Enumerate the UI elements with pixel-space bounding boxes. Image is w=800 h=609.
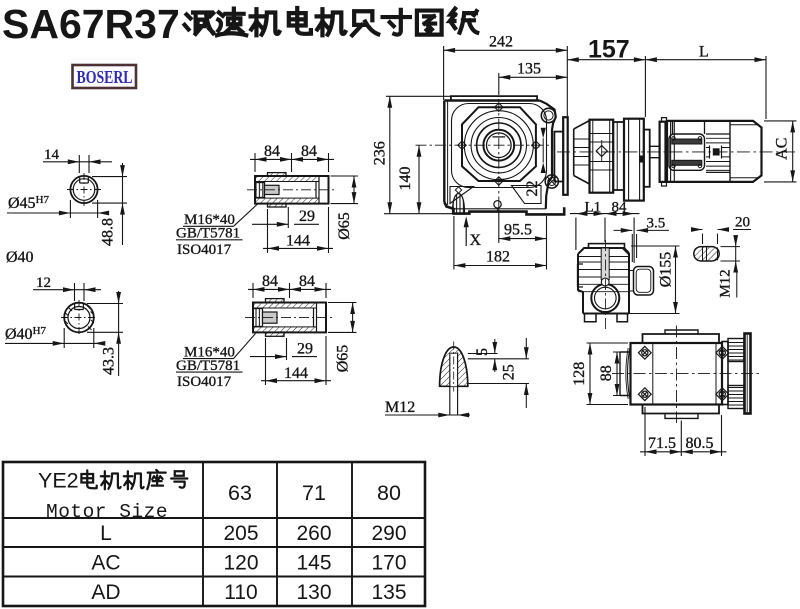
svg-text:110: 110 <box>224 581 257 604</box>
svg-text:22: 22 <box>524 181 541 197</box>
svg-text:84: 84 <box>299 273 315 290</box>
svg-text:80: 80 <box>377 481 401 505</box>
svg-text:170: 170 <box>371 552 406 575</box>
svg-text:20: 20 <box>735 215 750 231</box>
svg-text:260: 260 <box>296 522 331 545</box>
svg-text:L1: L1 <box>585 200 602 216</box>
svg-text:5: 5 <box>474 348 491 356</box>
svg-text:3.5: 3.5 <box>647 216 666 232</box>
svg-text:84: 84 <box>262 273 278 290</box>
svg-text:M12: M12 <box>385 399 415 416</box>
svg-text:25: 25 <box>501 364 518 380</box>
svg-text:144: 144 <box>284 365 308 382</box>
svg-text:14: 14 <box>44 147 60 163</box>
svg-text:140: 140 <box>397 167 414 191</box>
svg-text:Ø155: Ø155 <box>658 252 675 288</box>
svg-text:157: 157 <box>588 36 630 64</box>
svg-text:95.5: 95.5 <box>504 222 532 239</box>
svg-text:290: 290 <box>371 522 406 545</box>
svg-text:135: 135 <box>517 61 541 78</box>
svg-text:Ø65: Ø65 <box>335 345 352 373</box>
svg-text:ISO4017: ISO4017 <box>177 242 232 258</box>
svg-text:AC: AC <box>774 138 791 160</box>
svg-text:205: 205 <box>223 522 258 545</box>
svg-text:84: 84 <box>264 143 280 160</box>
svg-text:84: 84 <box>612 199 628 215</box>
svg-text:Motor Size: Motor Size <box>46 501 168 523</box>
svg-text:120: 120 <box>223 552 258 575</box>
svg-text:L: L <box>699 44 709 61</box>
svg-text:YE2: YE2 <box>38 469 79 493</box>
svg-text:43.3: 43.3 <box>101 347 118 375</box>
svg-text:M12: M12 <box>718 269 734 297</box>
svg-text:145: 145 <box>296 552 331 575</box>
svg-text:12: 12 <box>36 275 51 291</box>
svg-text:71: 71 <box>302 481 326 505</box>
svg-text:L: L <box>100 522 112 545</box>
svg-text:SA67R37: SA67R37 <box>2 1 180 47</box>
svg-text:144: 144 <box>286 233 310 250</box>
svg-text:AD: AD <box>91 581 120 604</box>
svg-text:29: 29 <box>299 208 315 225</box>
svg-text:BOSERL: BOSERL <box>77 67 133 87</box>
svg-text:48.8: 48.8 <box>100 218 117 246</box>
svg-text:ISO4017: ISO4017 <box>177 374 232 390</box>
svg-text:Ø65: Ø65 <box>336 212 353 240</box>
svg-text:182: 182 <box>486 249 510 266</box>
svg-text:135: 135 <box>371 581 406 604</box>
svg-text:88: 88 <box>598 365 615 381</box>
svg-text:63: 63 <box>228 481 252 505</box>
svg-text:84: 84 <box>301 143 317 160</box>
svg-text:242: 242 <box>489 34 513 51</box>
svg-text:80.5: 80.5 <box>686 435 714 452</box>
svg-text:GB/T5781: GB/T5781 <box>176 226 240 242</box>
svg-text:GB/T5781: GB/T5781 <box>176 358 240 374</box>
svg-text:X: X <box>470 232 482 249</box>
svg-text:Ø40: Ø40 <box>6 249 34 266</box>
svg-text:236: 236 <box>372 141 389 165</box>
svg-text:71.5: 71.5 <box>648 435 676 452</box>
svg-text:130: 130 <box>296 581 331 604</box>
svg-text:29: 29 <box>297 340 313 357</box>
svg-text:AC: AC <box>91 552 120 575</box>
svg-text:128: 128 <box>571 362 588 386</box>
